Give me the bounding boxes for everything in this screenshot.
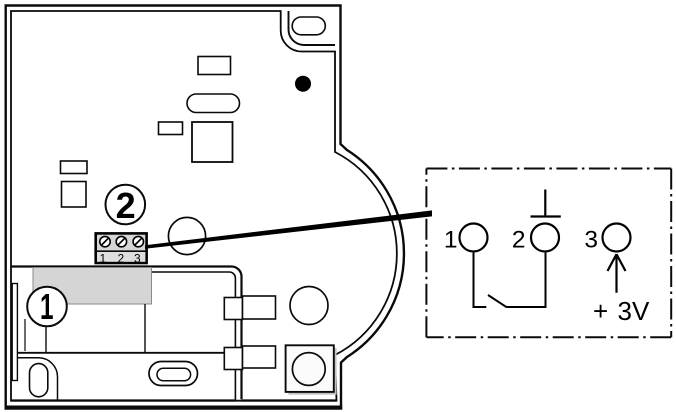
svg-text:3: 3 [584, 227, 598, 254]
svg-text:3: 3 [134, 251, 141, 265]
svg-text:1: 1 [100, 251, 107, 265]
svg-text:+: + [593, 296, 608, 326]
svg-text:2: 2 [116, 185, 136, 226]
svg-text:2: 2 [512, 227, 526, 254]
svg-text:3V: 3V [618, 296, 650, 326]
svg-text:2: 2 [118, 251, 125, 265]
svg-text:1: 1 [444, 227, 458, 254]
svg-text:1: 1 [40, 286, 54, 327]
